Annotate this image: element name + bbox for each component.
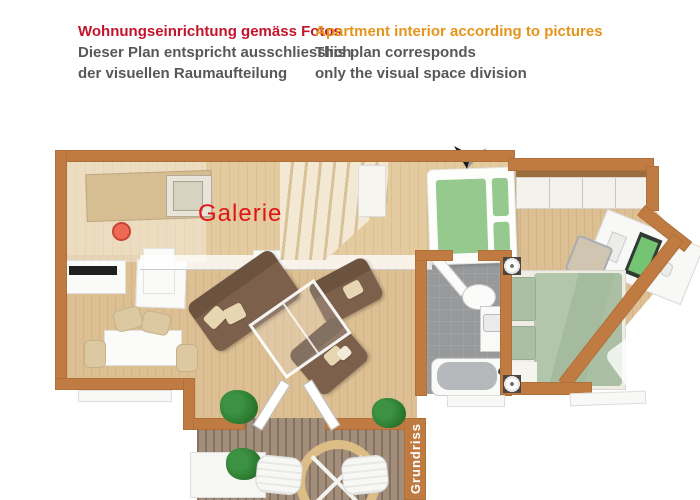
wall-top <box>55 150 515 162</box>
window-sill-2 <box>447 395 505 407</box>
english-subtitle-line1: This plan corresponds <box>315 42 603 63</box>
toilet-paper-holder <box>503 257 521 275</box>
balcony-chair-left <box>254 454 304 497</box>
stove-burner-icon <box>112 222 131 241</box>
gallery-bed-pillow <box>492 178 509 217</box>
balcony-chair-right <box>340 454 390 497</box>
window-sill-3 <box>570 391 646 407</box>
potted-plant-2 <box>372 398 406 428</box>
wall-left <box>55 150 67 390</box>
toilet-paper-holder-2 <box>503 375 521 393</box>
cooktop <box>69 266 117 275</box>
german-subtitle-line1: Dieser Plan entspricht ausschliesslich <box>78 42 351 63</box>
english-subtitle-line2: only the visual space division <box>315 63 603 84</box>
grundriss-label: Grundriss <box>408 423 423 494</box>
english-title: Apartment interior according to pictures <box>315 21 603 42</box>
window-sill <box>78 390 172 402</box>
potted-plant <box>220 390 258 424</box>
sofa-cushion-2 <box>222 302 247 325</box>
galerie-label: Galerie <box>198 200 282 228</box>
page: Wohnungseinrichtung gemäss Fotos Dieser … <box>0 0 700 500</box>
gallery-bed-mattress <box>436 178 489 254</box>
wall-grundriss: Grundriss <box>404 418 426 500</box>
wall-bathroom-left <box>415 250 427 396</box>
dining-chair-4 <box>176 344 198 372</box>
dining-chair-3 <box>84 340 106 368</box>
stove-knob-dots <box>110 214 113 217</box>
dining-table <box>104 330 182 366</box>
wardrobe <box>516 177 650 209</box>
gallery-bed-pillow-2 <box>493 222 510 253</box>
wall-bottom-left <box>55 378 195 390</box>
german-title: Wohnungseinrichtung gemäss Fotos <box>78 21 351 42</box>
coffee-table-glass-edge <box>283 303 319 353</box>
stair-closet <box>358 165 386 217</box>
wall-stub <box>415 250 453 261</box>
german-subtitle-line2: der visuellen Raumaufteilung <box>78 63 351 84</box>
wall-top-right <box>508 158 654 171</box>
german-note: Wohnungseinrichtung gemäss Fotos Dieser … <box>78 21 351 84</box>
bathtub-interior <box>437 362 497 390</box>
english-note: Apartment interior according to pictures… <box>315 21 603 84</box>
wall-right <box>646 166 659 211</box>
